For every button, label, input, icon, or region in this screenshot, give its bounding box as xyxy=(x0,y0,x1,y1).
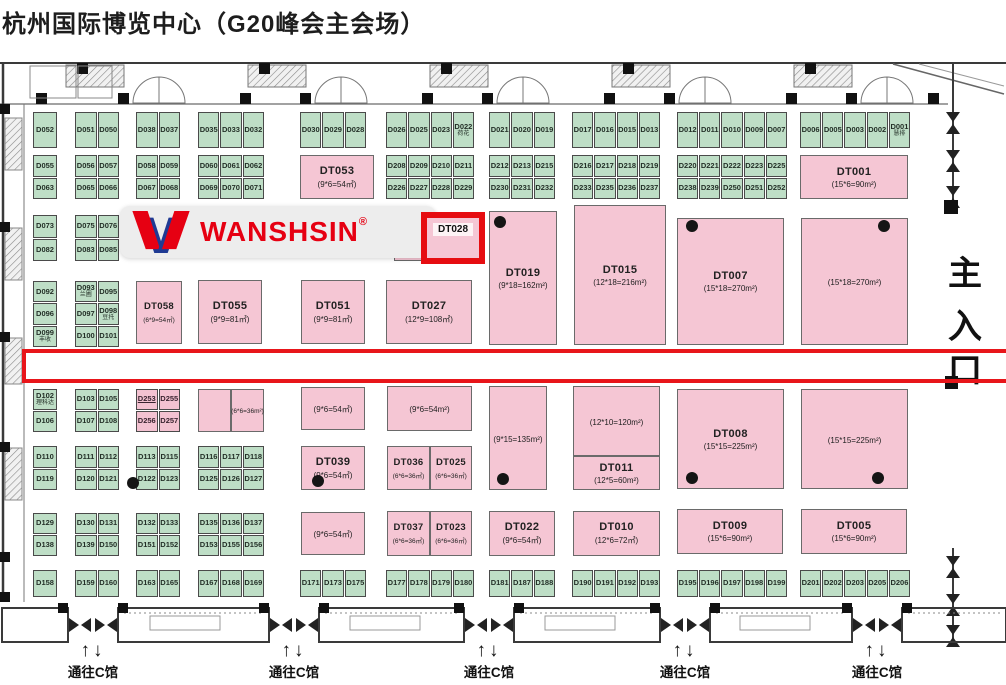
booth-cell: D202 xyxy=(822,570,843,597)
booth-cell: D022荷花 xyxy=(453,112,474,148)
booth-cell: D135 xyxy=(198,513,219,534)
main-entrance-label: 主 xyxy=(948,257,982,291)
booth-cell: D237 xyxy=(639,178,660,200)
booth-cell: D152 xyxy=(159,535,181,556)
booth-cell: D095 xyxy=(98,281,120,302)
booth-cell: D208 xyxy=(386,155,407,177)
booth-DT022: DT022(9*6=54㎡) xyxy=(489,511,555,556)
booth-row: D103D105 xyxy=(75,389,119,410)
gate-to-hall-c-label: 通往C馆 xyxy=(269,661,319,681)
booth-row: D130D131 xyxy=(75,513,119,534)
booth-group: D021D020D019 xyxy=(489,112,555,148)
booth-row: D201D202D203D205D206 xyxy=(800,570,910,597)
booth-cell: D199 xyxy=(766,570,787,597)
booth-group: D208D209D210D211D226D227D228D229 xyxy=(386,155,474,199)
booth-group: D055D063 xyxy=(33,155,57,199)
booth-cell: D219 xyxy=(639,155,660,177)
booth-row: D129 xyxy=(33,513,57,534)
booth-cell: D097 xyxy=(75,303,97,324)
booth-row: D107D108 xyxy=(75,411,119,432)
booth-row: D177D178D179D180 xyxy=(386,570,474,597)
booth-row: D017D016D015D013 xyxy=(572,112,660,148)
booth-group: D017D016D015D013 xyxy=(572,112,660,148)
booth-row: D139D150 xyxy=(75,535,119,556)
booth-group: D113D115D122D123 xyxy=(136,446,180,490)
booth-cell: D205 xyxy=(867,570,888,597)
booth-cell: D196 xyxy=(699,570,720,597)
booth-group: D038D037 xyxy=(136,112,180,148)
booth-cell: D150 xyxy=(98,535,120,556)
booth-cell: D122 xyxy=(136,469,158,491)
booth-cell: D232 xyxy=(534,178,555,200)
booth-cell: D035 xyxy=(198,112,219,148)
booth-cell: D178 xyxy=(408,570,429,597)
booth-cell: D175 xyxy=(345,570,366,597)
booth-cell: D190 xyxy=(572,570,593,597)
booth-group: D035D033D032 xyxy=(198,112,264,148)
booth-row: D038D037 xyxy=(136,112,180,148)
booth-cell: D231 xyxy=(511,178,532,200)
booth-cell: D188 xyxy=(534,570,555,597)
booth-cell: D236 xyxy=(617,178,638,200)
booth-row: D116D117D118 xyxy=(198,446,264,468)
booth-cell: D007 xyxy=(766,112,787,148)
booth-cell: D061 xyxy=(220,155,241,177)
booth-group: D135D136D137D153D155D156 xyxy=(198,513,264,556)
booth-cell: D220 xyxy=(677,155,698,177)
booth-cell: D076 xyxy=(98,215,120,238)
booth-DT011: DT011(12*5=60m²) xyxy=(573,456,660,490)
booth-cell: D066 xyxy=(98,178,120,200)
booth-cell: D033 xyxy=(220,112,241,148)
booth-row: D100D101 xyxy=(75,326,119,347)
booth-row: D006D005D003D002D001慧排 xyxy=(800,112,910,148)
booth-cell: D112 xyxy=(98,446,120,468)
booth-cell: D168 xyxy=(220,570,241,597)
booth-cell: D037 xyxy=(159,112,181,148)
booth-group: D030D029D028 xyxy=(300,112,366,148)
booth-cell: D120 xyxy=(75,469,97,491)
booth-cell: D191 xyxy=(594,570,615,597)
dt028-highlight-box: DT028 xyxy=(421,212,485,264)
booth-row: D113D115 xyxy=(136,446,180,468)
booth-cell: D058 xyxy=(136,155,158,177)
booth-cell: D068 xyxy=(159,178,181,200)
booth-cell: D153 xyxy=(198,535,219,556)
booth-cell: D106 xyxy=(33,411,57,432)
booth-row: D167D168D169 xyxy=(198,570,264,597)
booth-cell: D101 xyxy=(98,326,120,347)
booth-cell: D201 xyxy=(800,570,821,597)
booth-DT001: DT001(15*6=90m²) xyxy=(800,155,908,199)
booth-group: D052 xyxy=(33,112,57,148)
booth-group: D116D117D118D125D126D127 xyxy=(198,446,264,490)
booth-DT055: DT055(9*9=81㎡) xyxy=(198,280,262,344)
booth-group: D102理科达D106 xyxy=(33,389,57,432)
gate-arrows: ↑↓ xyxy=(282,641,307,660)
gate-to-hall-c-label: 通往C馆 xyxy=(660,661,710,681)
booth-DT027: DT027(12*9=108㎡) xyxy=(386,280,472,344)
booth-group: D073D082 xyxy=(33,215,57,261)
booth-row: D056D057 xyxy=(75,155,119,177)
wanshsin-logo-text: WANSHSIN xyxy=(200,216,359,248)
booth-row: D106 xyxy=(33,411,57,432)
booth-cell: D173 xyxy=(322,570,343,597)
booth-group: D181D187D188 xyxy=(489,570,555,597)
booth-DT039: DT039(9*6=54㎡) xyxy=(301,446,365,490)
booth-cell: D069 xyxy=(198,178,219,200)
booth-group: D177D178D179D180 xyxy=(386,570,474,597)
booth-unnamed: (15*15=225m²) xyxy=(801,389,908,489)
booth-cell: D229 xyxy=(453,178,474,200)
booth-cell: D011 xyxy=(699,112,720,148)
booth-cell: D167 xyxy=(198,570,219,597)
booth-cell: D056 xyxy=(75,155,97,177)
main-entrance-label: 入 xyxy=(948,310,982,344)
booth-cell: D130 xyxy=(75,513,97,534)
booth-cell: D193 xyxy=(639,570,660,597)
booth-cell: D057 xyxy=(98,155,120,177)
booth-cell: D139 xyxy=(75,535,97,556)
booth-group: D111D112D120D121 xyxy=(75,446,119,490)
booth-cell: D123 xyxy=(159,469,181,491)
booth-DT007: DT007(15*18=270m²) xyxy=(677,218,784,345)
booth-cell: D002 xyxy=(867,112,888,148)
booth-cell: D023 xyxy=(431,112,452,148)
gate-to-hall-c-label: 通往C馆 xyxy=(852,661,902,681)
booth-row: D110 xyxy=(33,446,57,468)
booth-cell: D119 xyxy=(33,469,57,491)
booth-DT005: DT005(15*6=90m²) xyxy=(801,509,907,554)
booth-row: D063 xyxy=(33,178,57,200)
booth-unnamed: (9*6=54m²) xyxy=(387,386,472,431)
column-dot xyxy=(494,216,506,228)
booth-cell: D197 xyxy=(721,570,742,597)
booth-cell: D012 xyxy=(677,112,698,148)
booth-cell: D117 xyxy=(220,446,241,468)
booth-cell: D100 xyxy=(75,326,97,347)
column-dot xyxy=(127,477,139,489)
booth-cell: D192 xyxy=(617,570,638,597)
booth-row: D226D227D228D229 xyxy=(386,178,474,200)
booth-cell: D025 xyxy=(408,112,429,148)
booth-row: D092 xyxy=(33,281,57,302)
booth-group: D051D050 xyxy=(75,112,119,148)
booth-group: D056D057D065D066 xyxy=(75,155,119,199)
booth-cell: D159 xyxy=(75,570,97,597)
booth-row: D163D165 xyxy=(136,570,180,597)
booth-row: D125D126D127 xyxy=(198,469,264,491)
booth-cell: D131 xyxy=(98,513,120,534)
booth-group: D058D059D067D068 xyxy=(136,155,180,199)
booth-row: D216D217D218D219 xyxy=(572,155,660,177)
booth-row: D012D011D010D009D007 xyxy=(677,112,787,148)
booth-row: D111D112 xyxy=(75,446,119,468)
booth-row: D067D068 xyxy=(136,178,180,200)
booth-row: D158 xyxy=(33,570,57,597)
booth-group: D195D196D197D198D199 xyxy=(677,570,787,597)
booth-row: D052 xyxy=(33,112,57,148)
booth-row: D097D098豆托 xyxy=(75,303,119,324)
booth-cell: D029 xyxy=(322,112,343,148)
booth-cell: D163 xyxy=(136,570,158,597)
booth-cell: D250 xyxy=(721,178,742,200)
booth-cell: D026 xyxy=(386,112,407,148)
booth-cell: D075 xyxy=(75,215,97,238)
booth-cell: D015 xyxy=(617,112,638,148)
booth-group: D171D173D175 xyxy=(300,570,366,597)
booth-cell: D180 xyxy=(453,570,474,597)
booth-cell: D255 xyxy=(159,389,181,410)
booth-cell: D165 xyxy=(159,570,181,597)
booth-row: D138 xyxy=(33,535,57,556)
booth-group: D212D213D215D230D231D232 xyxy=(489,155,555,199)
booth-unnamed: (9*6=54㎡) xyxy=(301,512,365,555)
booth-row: D119 xyxy=(33,469,57,491)
booth-group: D129D138 xyxy=(33,513,57,556)
booth-cell: D105 xyxy=(98,389,120,410)
booth-cell: D181 xyxy=(489,570,510,597)
booth-cell: D055 xyxy=(33,155,57,177)
booth-cell: D110 xyxy=(33,446,57,468)
booth-cell: D215 xyxy=(534,155,555,177)
gate-to-hall-c-label: 通往C馆 xyxy=(464,661,514,681)
gate-to-hall-c-label: 通往C馆 xyxy=(68,661,118,681)
booth-group: D026D025D023D022荷花 xyxy=(386,112,474,148)
booth-row: D069D070D071 xyxy=(198,178,264,200)
booth-cell: D160 xyxy=(98,570,120,597)
booth-unnamed xyxy=(198,389,231,432)
booth-cell: D103 xyxy=(75,389,97,410)
booth-cell: D218 xyxy=(617,155,638,177)
booth-cell: D108 xyxy=(98,411,120,432)
booth-row: D195D196D197D198D199 xyxy=(677,570,787,597)
dt028-label: DT028 xyxy=(433,223,473,236)
booth-cell: D239 xyxy=(699,178,720,200)
column-dot xyxy=(686,472,698,484)
booth-cell: D052 xyxy=(33,112,57,148)
booth-cell: D228 xyxy=(431,178,452,200)
booth-row: D030D029D028 xyxy=(300,112,366,148)
booth-cell: D083 xyxy=(75,239,97,262)
booth-cell: D070 xyxy=(220,178,241,200)
booth-row: D026D025D023D022荷花 xyxy=(386,112,474,148)
booth-cell: D235 xyxy=(594,178,615,200)
booth-cell: D233 xyxy=(572,178,593,200)
booth-row: D238D239D250D251D252 xyxy=(677,178,787,200)
booth-group: D201D202D203D205D206 xyxy=(800,570,910,597)
booth-row: D220D221D222D223D225 xyxy=(677,155,787,177)
booth-row: D075D076 xyxy=(75,215,119,238)
booth-cell: D020 xyxy=(511,112,532,148)
booth-cell: D137 xyxy=(243,513,264,534)
booth-cell: D071 xyxy=(243,178,264,200)
booth-row: D256D257 xyxy=(136,411,180,432)
booth-cell: D126 xyxy=(220,469,241,491)
booth-row: D035D033D032 xyxy=(198,112,264,148)
booth-unnamed: (15*18=270m²) xyxy=(801,218,908,345)
booth-cell: D038 xyxy=(136,112,158,148)
booth-cell: D217 xyxy=(594,155,615,177)
booth-cell: D257 xyxy=(159,411,181,432)
floor-plan: 杭州国际博览中心（G20峰会主会场） xyxy=(0,0,1006,685)
booth-cell: D021 xyxy=(489,112,510,148)
booth-group: D130D131D139D150 xyxy=(75,513,119,556)
booth-cell: D206 xyxy=(889,570,910,597)
booth-cell: D158 xyxy=(33,570,57,597)
booth-unnamed: (9*6=54㎡) xyxy=(301,387,365,430)
booth-cell: D016 xyxy=(594,112,615,148)
booth-DT009: DT009(15*6=90m²) xyxy=(677,509,783,554)
booth-cell: D099丰收 xyxy=(33,326,57,347)
booth-group: D220D221D222D223D225D238D239D250D251D252 xyxy=(677,155,787,199)
gate-arrows: ↑↓ xyxy=(865,641,890,660)
booth-cell: D125 xyxy=(198,469,219,491)
booth-group: D012D011D010D009D007 xyxy=(677,112,787,148)
booth-cell: D209 xyxy=(408,155,429,177)
booth-cell: D082 xyxy=(33,239,57,262)
booth-cell: D028 xyxy=(345,112,366,148)
booth-row: D102理科达 xyxy=(33,389,57,410)
booth-row: D208D209D210D211 xyxy=(386,155,474,177)
column-dot xyxy=(872,472,884,484)
booth-cell: D065 xyxy=(75,178,97,200)
booth-row: D171D173D175 xyxy=(300,570,366,597)
booth-cell: D132 xyxy=(136,513,158,534)
booth-row: D153D155D156 xyxy=(198,535,264,556)
booth-cell: D030 xyxy=(300,112,321,148)
booth-row: D135D136D137 xyxy=(198,513,264,534)
booth-cell: D210 xyxy=(431,155,452,177)
booth-cell: D019 xyxy=(534,112,555,148)
booth-cell: D093兰圃 xyxy=(75,281,97,302)
booth-row: D151D152 xyxy=(136,535,180,556)
booth-cell: D003 xyxy=(844,112,865,148)
booth-cell: D256 xyxy=(136,411,158,432)
booth-cell: D133 xyxy=(159,513,181,534)
booth-cell: D085 xyxy=(98,239,120,262)
booth-cell: D116 xyxy=(198,446,219,468)
booth-cell: D118 xyxy=(243,446,264,468)
booth-cell: D171 xyxy=(300,570,321,597)
booth-group: D163D165 xyxy=(136,570,180,597)
column-dot xyxy=(686,220,698,232)
booth-row: D058D059 xyxy=(136,155,180,177)
booth-cell: D001慧排 xyxy=(889,112,910,148)
booth-row: D065D066 xyxy=(75,178,119,200)
booth-cell: D213 xyxy=(511,155,532,177)
booth-row: D132D133 xyxy=(136,513,180,534)
booth-cell: D115 xyxy=(159,446,181,468)
booth-row: D159D160 xyxy=(75,570,119,597)
booth-group: D167D168D169 xyxy=(198,570,264,597)
booth-group: D132D133D151D152 xyxy=(136,513,180,556)
booth-cell: D169 xyxy=(243,570,264,597)
booth-cell: D010 xyxy=(721,112,742,148)
booth-cell: D253 xyxy=(136,389,158,410)
column-dot xyxy=(312,475,324,487)
booth-DT058: DT058(6*9=54㎡) xyxy=(136,281,182,344)
booth-group: D190D191D192D193 xyxy=(572,570,660,597)
booth-cell: D222 xyxy=(721,155,742,177)
booth-cell: D121 xyxy=(98,469,120,491)
booth-group: D158 xyxy=(33,570,57,597)
booth-cell: D138 xyxy=(33,535,57,556)
booth-group: D103D105D107D108 xyxy=(75,389,119,432)
booth-group: D253D255D256D257 xyxy=(136,389,180,432)
booth-cell: D096 xyxy=(33,303,57,324)
booth-cell: D211 xyxy=(453,155,474,177)
booth-cell: D051 xyxy=(75,112,97,148)
booth-cell: D059 xyxy=(159,155,181,177)
booth-cell: D203 xyxy=(844,570,865,597)
booth-cell: D092 xyxy=(33,281,57,302)
booth-cell: D136 xyxy=(220,513,241,534)
booth-row: D212D213D215 xyxy=(489,155,555,177)
gate-arrows: ↑↓ xyxy=(673,641,698,660)
booth-cell: D198 xyxy=(744,570,765,597)
booth-cell: D156 xyxy=(243,535,264,556)
booth-row: D253D255 xyxy=(136,389,180,410)
booth-group: D110D119 xyxy=(33,446,57,490)
booth-row: D122D123 xyxy=(136,469,180,491)
gate-arrows: ↑↓ xyxy=(81,641,106,660)
booth-group: D060D061D062D069D070D071 xyxy=(198,155,264,199)
booth-row: D082 xyxy=(33,239,57,262)
booth-cell: D098豆托 xyxy=(98,303,120,324)
booth-cell: D107 xyxy=(75,411,97,432)
booth-row: D051D050 xyxy=(75,112,119,148)
booth-group: D159D160 xyxy=(75,570,119,597)
booth-row: D093兰圃D095 xyxy=(75,281,119,302)
gate-arrows: ↑↓ xyxy=(477,641,502,660)
booth-cell: D179 xyxy=(431,570,452,597)
booth-cell: D013 xyxy=(639,112,660,148)
booth-row: D120D121 xyxy=(75,469,119,491)
booth-DT037: DT037(6*6=36㎡) xyxy=(387,511,430,556)
booth-cell: D009 xyxy=(744,112,765,148)
booth-cell: D212 xyxy=(489,155,510,177)
booth-row: D190D191D192D193 xyxy=(572,570,660,597)
booth-DT025: DT025(6*6=36㎡) xyxy=(430,446,472,490)
booth-cell: D127 xyxy=(243,469,264,491)
booth-group: D092D096D099丰收 xyxy=(33,281,57,347)
column-dot xyxy=(497,473,509,485)
booth-row: D099丰收 xyxy=(33,326,57,347)
booth-cell: D238 xyxy=(677,178,698,200)
booth-cell: D017 xyxy=(572,112,593,148)
booth-cell: D006 xyxy=(800,112,821,148)
booth-group: D075D076D083D085 xyxy=(75,215,119,261)
booth-cell: D230 xyxy=(489,178,510,200)
booth-cell: D223 xyxy=(744,155,765,177)
booth-cell: D226 xyxy=(386,178,407,200)
booth-DT053: DT053(9*6=54㎡) xyxy=(300,155,374,199)
booth-unnamed: (6*6=36m²) xyxy=(231,389,264,432)
booth-row: D060D061D062 xyxy=(198,155,264,177)
registered-mark: ® xyxy=(359,216,367,228)
booth-row: D055 xyxy=(33,155,57,177)
page-title: 杭州国际博览中心（G20峰会主会场） xyxy=(2,4,425,39)
booth-cell: D195 xyxy=(677,570,698,597)
aisle-highlight-band xyxy=(22,349,1006,383)
booth-cell: D155 xyxy=(220,535,241,556)
booth-DT036: DT036(6*6=36㎡) xyxy=(387,446,430,490)
booth-cell: D060 xyxy=(198,155,219,177)
booth-cell: D225 xyxy=(766,155,787,177)
booth-cell: D062 xyxy=(243,155,264,177)
booth-unnamed: (12*10=120m²) xyxy=(573,386,660,456)
